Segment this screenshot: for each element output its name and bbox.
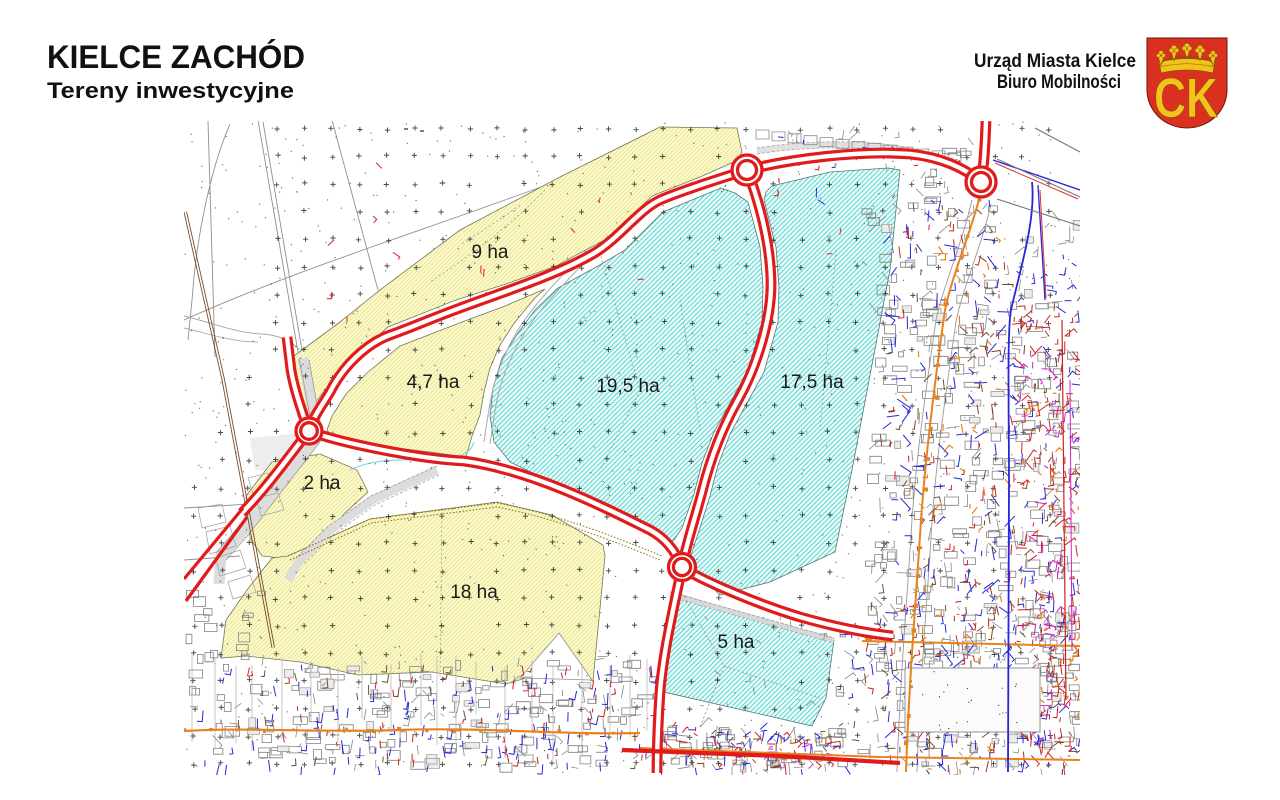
svg-text:19,5 ha: 19,5 ha	[596, 376, 660, 397]
svg-text:2 ha: 2 ha	[304, 473, 341, 494]
svg-text:5 ha: 5 ha	[718, 632, 755, 653]
svg-text:Tereny inwestycyjne: Tereny inwestycyjne	[47, 78, 294, 103]
svg-text:CK: CK	[1154, 66, 1218, 129]
svg-text:Urząd Miasta Kielce: Urząd Miasta Kielce	[974, 51, 1136, 72]
svg-text:Biuro Mobilności: Biuro Mobilności	[997, 72, 1121, 93]
svg-text:4,7 ha: 4,7 ha	[407, 372, 460, 393]
svg-text:18 ha: 18 ha	[450, 582, 498, 603]
svg-text:KIELCE ZACHÓD: KIELCE ZACHÓD	[47, 39, 305, 75]
svg-text:17,5 ha: 17,5 ha	[780, 372, 844, 393]
svg-text:9 ha: 9 ha	[472, 242, 509, 263]
